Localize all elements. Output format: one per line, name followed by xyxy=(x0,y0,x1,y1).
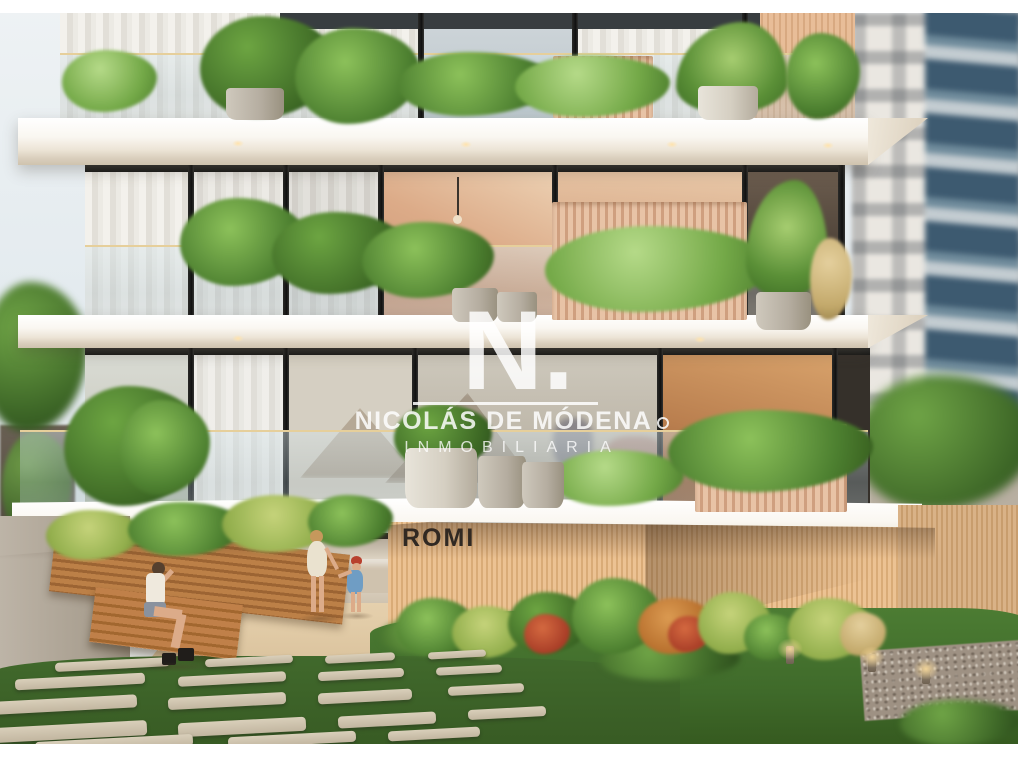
background-tree xyxy=(0,282,87,432)
pendant-lamp-shade xyxy=(453,215,462,224)
garden-light xyxy=(922,666,930,684)
toddler xyxy=(342,556,374,622)
garden-light xyxy=(786,646,794,664)
woman-leg xyxy=(311,576,316,612)
window-transom xyxy=(280,13,760,29)
plant-pot xyxy=(226,88,284,120)
ceiling-light xyxy=(694,336,706,343)
plant-pot xyxy=(405,448,477,508)
plant-pot xyxy=(522,462,564,508)
seated-woman-top xyxy=(146,573,165,605)
window-frame xyxy=(85,165,845,172)
person-shadow xyxy=(298,614,342,623)
building-sign-text: ROMI xyxy=(402,524,475,552)
pampas-grass xyxy=(810,238,852,320)
ceiling-light xyxy=(460,141,472,148)
garden-light xyxy=(868,654,876,672)
background-tree xyxy=(855,375,1024,510)
plant-pot xyxy=(497,292,537,322)
pendant-lamp xyxy=(457,177,459,217)
seated-woman xyxy=(122,556,212,674)
plant-pot xyxy=(698,86,758,120)
plant-pot xyxy=(452,288,498,322)
plant-pot xyxy=(478,456,526,508)
render-photo: ROMI N. NICOLÁS DE MÓDENA INMOBI xyxy=(0,0,1024,768)
photo-border-bottom xyxy=(0,744,1024,768)
ceiling-light xyxy=(666,141,678,148)
photo-border-right xyxy=(1018,0,1024,768)
person-shadow xyxy=(142,662,212,672)
plant-pot xyxy=(756,292,811,330)
balcony-slab xyxy=(18,118,868,165)
building-sign: ROMI xyxy=(402,524,502,554)
toddler-leg xyxy=(351,592,355,612)
woman-leg xyxy=(319,576,324,612)
person-shadow xyxy=(340,612,374,620)
woman-dress xyxy=(307,541,327,577)
ceiling-light xyxy=(822,142,834,149)
toddler-leg xyxy=(357,592,361,612)
ceiling-light xyxy=(232,140,244,147)
photo-border-top xyxy=(0,0,1024,13)
seated-woman-boot xyxy=(178,648,194,661)
ceiling-light xyxy=(232,335,244,342)
window-frame xyxy=(85,348,870,355)
